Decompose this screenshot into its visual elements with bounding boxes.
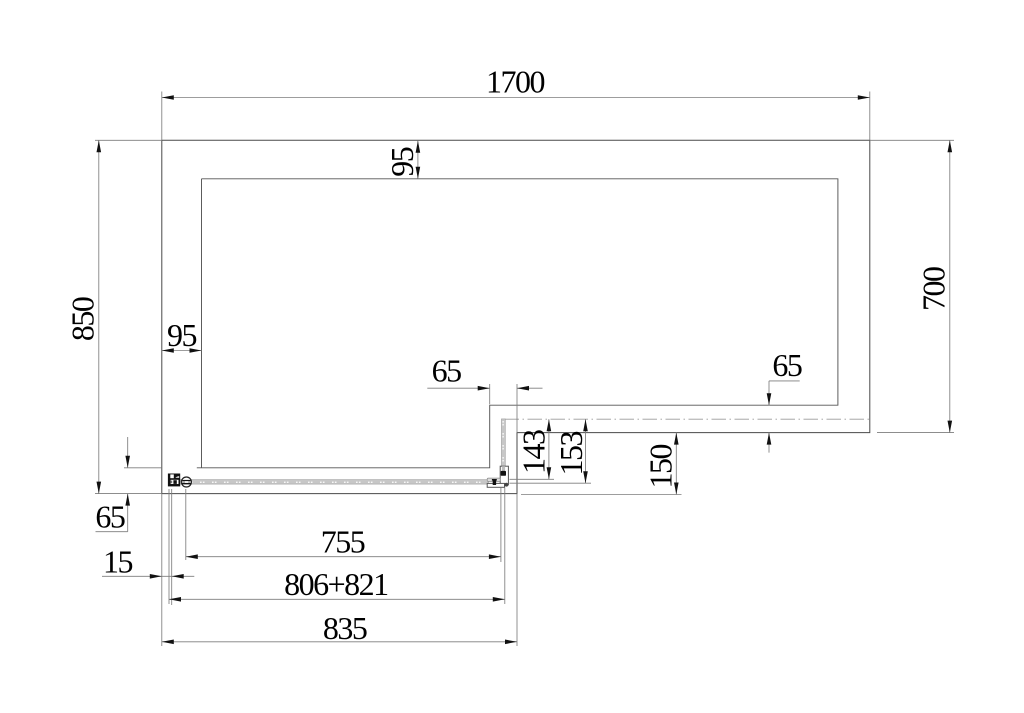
- svg-text:65: 65: [95, 499, 125, 535]
- svg-text:700: 700: [915, 267, 951, 311]
- svg-text:835: 835: [323, 610, 367, 646]
- svg-text:1700: 1700: [486, 64, 545, 100]
- svg-text:95: 95: [167, 317, 197, 353]
- svg-text:153: 153: [553, 432, 589, 476]
- svg-text:806+821: 806+821: [284, 566, 388, 602]
- svg-text:95: 95: [384, 147, 420, 177]
- svg-text:150: 150: [642, 445, 678, 489]
- svg-text:755: 755: [321, 524, 365, 560]
- svg-text:65: 65: [432, 352, 462, 388]
- svg-text:850: 850: [64, 297, 100, 341]
- svg-text:15: 15: [103, 544, 133, 580]
- svg-text:65: 65: [772, 347, 802, 383]
- svg-text:143: 143: [516, 430, 552, 474]
